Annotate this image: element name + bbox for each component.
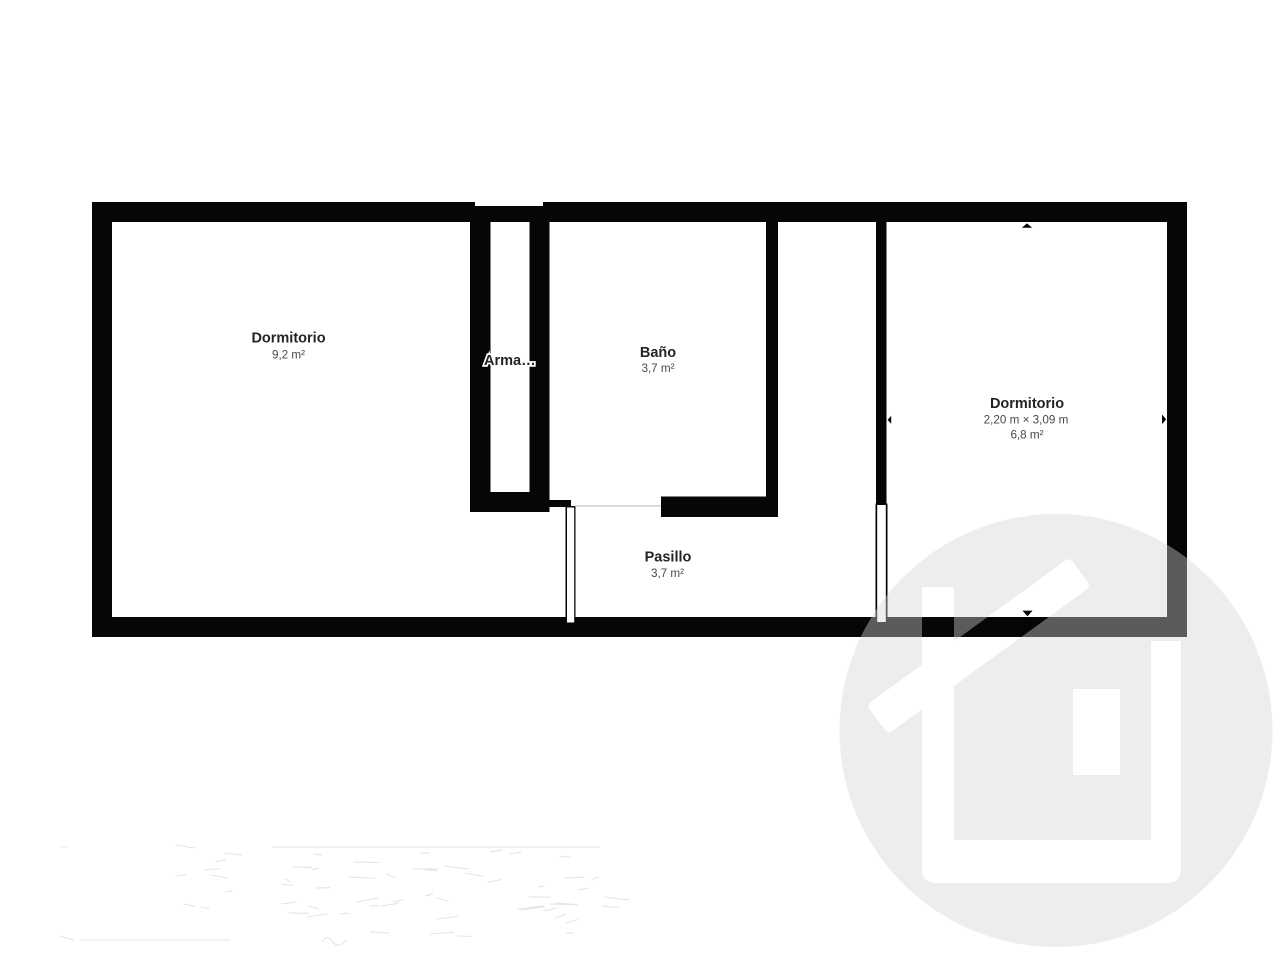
svg-text:9,2 m²: 9,2 m² bbox=[272, 349, 305, 362]
svg-text:Baño: Baño bbox=[640, 345, 676, 361]
svg-text:6,8 m²: 6,8 m² bbox=[1010, 429, 1043, 442]
svg-text:Dormitorio: Dormitorio bbox=[990, 396, 1064, 412]
svg-text:Dormitorio: Dormitorio bbox=[251, 331, 325, 347]
svg-text:3,7 m²: 3,7 m² bbox=[641, 362, 674, 375]
svg-text:2,20 m × 3,09 m: 2,20 m × 3,09 m bbox=[984, 414, 1069, 427]
svg-text:3,7 m²: 3,7 m² bbox=[651, 567, 684, 580]
svg-text:Pasillo: Pasillo bbox=[645, 550, 692, 566]
svg-text:Arma…: Arma… bbox=[484, 353, 536, 369]
